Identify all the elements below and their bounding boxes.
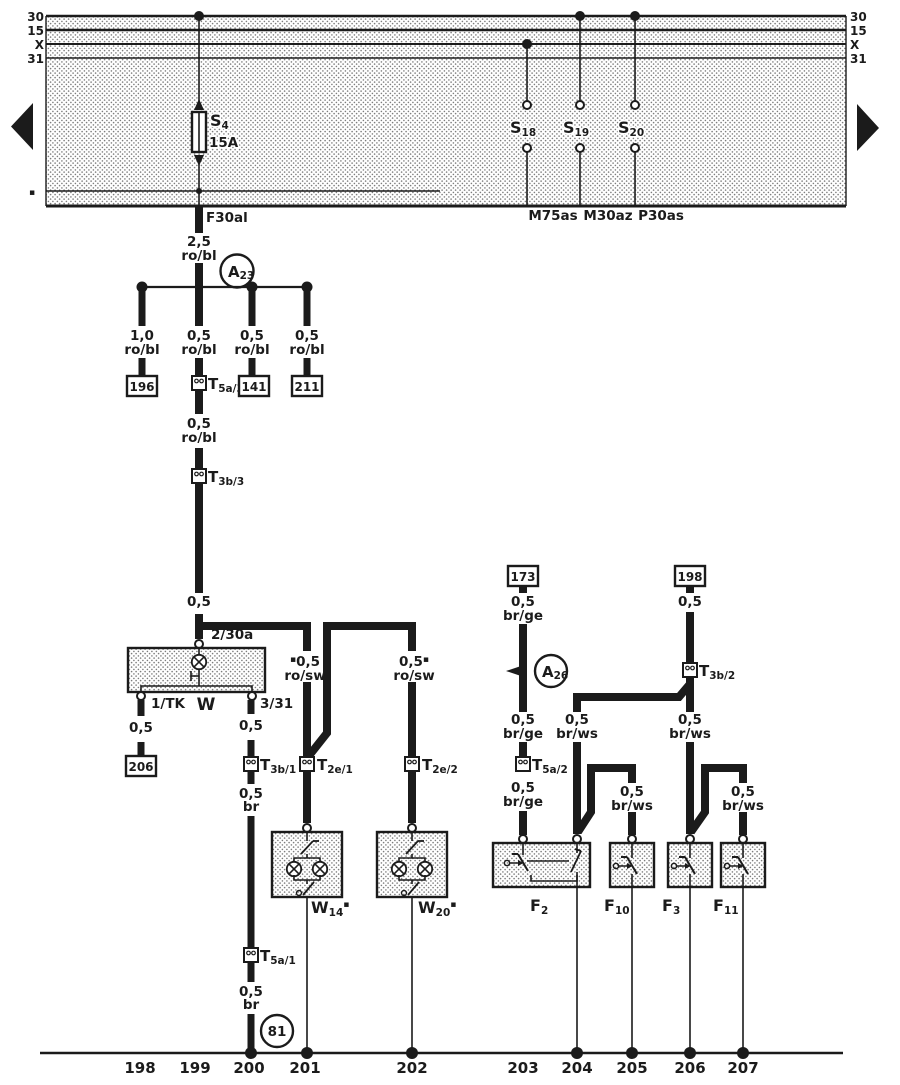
- track-number: 200: [233, 1059, 264, 1077]
- track-number: 207: [727, 1059, 758, 1077]
- continuation-box-label: 196: [129, 380, 154, 394]
- connector-symbol: [516, 757, 530, 771]
- bus-label-left-30: 30: [27, 10, 44, 24]
- component-f3: F3: [662, 835, 712, 1053]
- rail-junction-dot: [626, 1047, 638, 1059]
- wire-color-label: ro/bl: [181, 342, 216, 358]
- continuation-box-label: 173: [510, 570, 535, 584]
- continuation-box-label: 198: [677, 570, 702, 584]
- wire-designation-p30as: P30as: [638, 208, 684, 224]
- track-number: 199: [179, 1059, 210, 1077]
- terminal-circle: [303, 824, 311, 832]
- lamp-icon: [313, 862, 327, 876]
- branch-196: 1,0 ro/bl 196: [124, 287, 159, 396]
- wire-gauge-label: 0,5: [129, 720, 153, 736]
- terminal-circle: [628, 835, 636, 843]
- wire-color-label: br: [243, 799, 260, 815]
- track-number: 198: [124, 1059, 155, 1077]
- lamp-icon: [287, 862, 301, 876]
- connector-t5a2-label: T5a/2: [532, 756, 568, 776]
- wire-color-label: ro/bl: [181, 248, 216, 264]
- wire-color-label: br/ge: [503, 608, 543, 624]
- lamp-icon: [418, 862, 432, 876]
- wire-designation-f30al: F30al: [206, 210, 248, 226]
- component-f2: F2: [493, 835, 590, 1053]
- terminal-circle: [576, 144, 584, 152]
- rail-junction-dot: [684, 1047, 696, 1059]
- terminal-circle: [631, 101, 639, 109]
- connector-t2e2-label: T2e/2: [422, 756, 458, 776]
- terminal-label-1-tk: 1/TK: [151, 696, 186, 712]
- ground-symbol-81: 81: [261, 1015, 293, 1047]
- component-w14-label: W14▪: [311, 898, 349, 919]
- component-w20: W20▪: [377, 824, 456, 1053]
- terminal-circle: [576, 101, 584, 109]
- track-rail: 198 199 200 201 202 203 204 205 206 207: [40, 1047, 843, 1077]
- wire-designation-m30az: M30az: [583, 208, 632, 224]
- component-body: [377, 832, 447, 897]
- connector-t3b3-label: T3b/3: [208, 468, 244, 488]
- rail-junction-dot: [571, 1047, 583, 1059]
- bus-label-right-15: 15: [850, 24, 867, 38]
- terminal-circle: [519, 835, 527, 843]
- wire-color-label: ro/bl: [234, 342, 269, 358]
- bus-edge-marker: ▪: [29, 188, 35, 198]
- branch-141: 0,5 ro/bl 141: [234, 287, 269, 396]
- connector-t2e1-label: T2e/1: [317, 756, 353, 776]
- connector-symbol: [192, 469, 206, 483]
- track-number: 202: [396, 1059, 427, 1077]
- rail-junction-dot: [301, 1047, 313, 1059]
- wire-branch-u: [308, 626, 412, 757]
- junction-dot: [630, 11, 640, 21]
- continuation-box-label: 206: [128, 760, 153, 774]
- wire-color-label: br/ge: [503, 726, 543, 742]
- continuation-arrow-right-icon: [857, 104, 879, 151]
- track-number: 203: [507, 1059, 538, 1077]
- bus-label-left-31: 31: [27, 52, 44, 66]
- terminal-circle: [248, 692, 256, 700]
- component-f10-label: F10: [604, 896, 630, 917]
- connector-symbol: [683, 663, 697, 677]
- wire-color-label: ro/bl: [181, 430, 216, 446]
- branch-main: 0,5 ro/bl T5a/3: [181, 328, 243, 395]
- terminal-circle: [686, 835, 694, 843]
- continuation-box-label: 211: [294, 380, 319, 394]
- wiring-diagram: 30 15 X 31 30 15 X 31 ▪ S4 15A: [0, 0, 900, 1085]
- wire-designation-m75as: M75as: [528, 208, 577, 224]
- terminal-circle: [195, 640, 203, 648]
- terminal-circle: [631, 144, 639, 152]
- track-number: 204: [561, 1059, 592, 1077]
- junction-dot: [575, 11, 585, 21]
- connector-symbol: [405, 757, 419, 771]
- terminal-circle: [573, 835, 581, 843]
- wire-color-label: ro/sw: [284, 668, 325, 684]
- connector-symbol: [300, 757, 314, 771]
- bus-label-right-x: X: [850, 38, 860, 52]
- continuation-box-label: 141: [241, 380, 266, 394]
- wire-gauge-label: 0,5: [239, 718, 263, 734]
- wire-color-label: br/ws: [722, 798, 764, 814]
- lamp-icon: [192, 655, 206, 669]
- component-w20-label: W20▪: [418, 898, 456, 919]
- rail-junction-dot: [737, 1047, 749, 1059]
- power-bus-band: 30 15 X 31 30 15 X 31 ▪ S4 15A: [11, 10, 879, 206]
- component-body: [272, 832, 342, 897]
- bus-label-left-x: X: [35, 38, 45, 52]
- wire-color-label: br/ws: [611, 798, 653, 814]
- component-f10: F10: [604, 835, 654, 1053]
- connection-arrow-icon: [506, 666, 521, 676]
- column-173: 173 0,5 br/ge A26 0,5 br/ge T5a/2 0,5 br…: [503, 566, 568, 835]
- rail-junction-dot: [406, 1047, 418, 1059]
- terminal-label-2-30a: 2/30a: [211, 627, 253, 643]
- connector-symbol: [192, 376, 206, 390]
- bus-label-right-30: 30: [850, 10, 867, 24]
- continuation-arrow-left-icon: [11, 103, 33, 150]
- wire-color-label: ro/bl: [289, 342, 324, 358]
- terminal-circle: [739, 835, 747, 843]
- wire-gauge-label: 0,5: [678, 594, 702, 610]
- wire-color-label: br: [243, 997, 260, 1013]
- track-number: 206: [674, 1059, 705, 1077]
- junction-dot: [522, 39, 532, 49]
- component-f11: F11: [713, 835, 765, 1053]
- wire-color-label: br/ws: [556, 726, 598, 742]
- branch-211: 0,5 ro/bl 211: [289, 287, 324, 396]
- terminal-circle: [408, 824, 416, 832]
- wire-color-label: ro/bl: [124, 342, 159, 358]
- rail-junction-dot: [245, 1047, 257, 1059]
- column-198: 198 0,5 T3b/2 0,5 br/ws 0,5 br/ws 0,5 br…: [556, 566, 764, 835]
- ground-label: 81: [268, 1024, 287, 1040]
- wire-color-label: br/ws: [669, 726, 711, 742]
- component-w: 2/30a 1/TK W 3/31: [128, 627, 293, 715]
- track-number: 205: [616, 1059, 647, 1077]
- junction-dot: [194, 11, 204, 21]
- connector-t3b1-label: T3b/1: [260, 756, 296, 776]
- component-w-label: W: [197, 695, 216, 715]
- terminal-label-3-31: 3/31: [260, 696, 293, 712]
- component-f3-label: F3: [662, 896, 680, 917]
- terminal-circle: [523, 101, 531, 109]
- component-f11-label: F11: [713, 896, 739, 917]
- terminal-circle: [523, 144, 531, 152]
- terminal-circle: [137, 692, 145, 700]
- connector-t5a1-label: T5a/1: [260, 947, 296, 967]
- wire-color-label: br/ge: [503, 794, 543, 810]
- trunk-wire: 2,5 ro/bl 0,5 ro/bl 0,5: [181, 205, 216, 639]
- bus-label-left-15: 15: [27, 24, 44, 38]
- connector-symbol: [244, 948, 258, 962]
- connector-symbol: [244, 757, 258, 771]
- wire-gauge-label: 0,5: [187, 594, 211, 610]
- connector-t3b2-label: T3b/2: [699, 662, 735, 682]
- track-number: 201: [289, 1059, 320, 1077]
- fuse-s4-rating: 15A: [209, 135, 239, 151]
- wire-color-label: ro/sw: [393, 668, 434, 684]
- junction-dot: [196, 188, 202, 194]
- wire-branch: [577, 684, 690, 712]
- component-f2-label: F2: [530, 896, 548, 917]
- lamp-icon: [392, 862, 406, 876]
- wiring-diagram-page: 30 15 X 31 30 15 X 31 ▪ S4 15A: [0, 0, 900, 1085]
- bus-label-right-31: 31: [850, 52, 867, 66]
